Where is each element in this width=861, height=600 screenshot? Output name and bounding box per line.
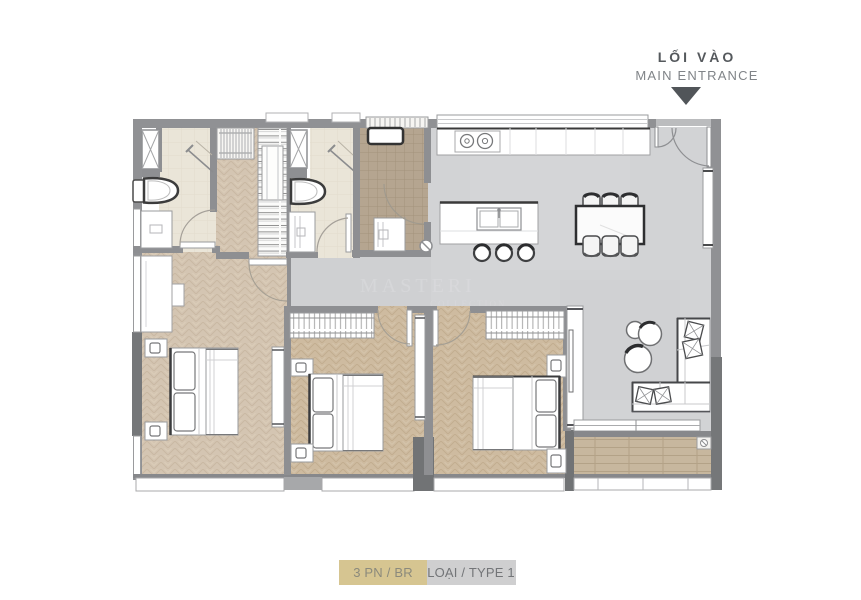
svg-text:LỐI VÀO: LỐI VÀO	[658, 48, 737, 65]
svg-text:MASTERI: MASTERI	[360, 275, 476, 297]
svg-text:3 PN / BR: 3 PN / BR	[353, 565, 413, 580]
svg-text:LOẠI / TYPE 1: LOẠI / TYPE 1	[427, 565, 515, 580]
svg-text:MAIN ENTRANCE: MAIN ENTRANCE	[635, 68, 758, 83]
